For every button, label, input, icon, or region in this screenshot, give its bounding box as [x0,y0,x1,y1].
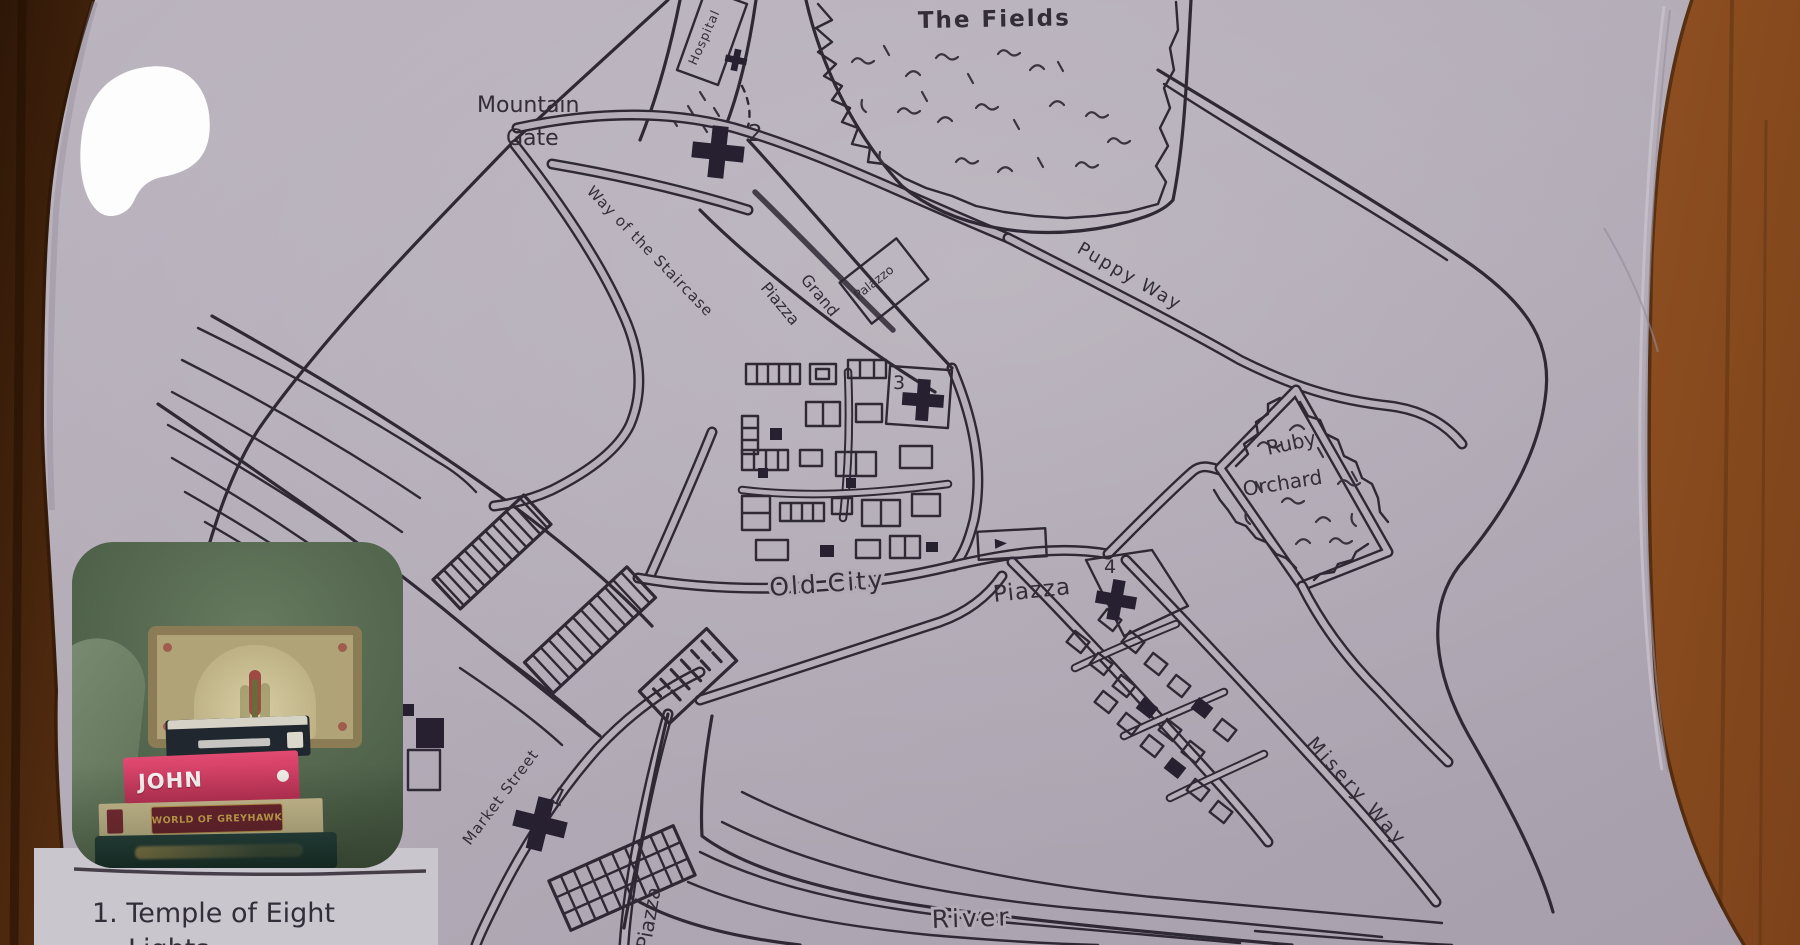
marker-number-2: 2 [748,121,763,147]
book-world-of-greyhawk: WORLD OF GREYHAWK [99,798,324,841]
book-pages-edge [167,716,307,730]
box-title-banner: WORLD OF GREYHAWK [151,803,284,834]
book-title: WORLD OF GREYHAWK [152,812,283,826]
book-teal-spine [95,832,338,868]
book-spine-text-bar [198,738,270,749]
book-title: JOHN CARTER [138,767,239,844]
tapestry-cushion [148,626,362,748]
book-dark-spine [165,715,310,760]
label-river: River [931,902,1012,934]
legend-line-2: Lights [128,934,209,945]
armchair-arm [72,634,150,868]
publisher-logo-icon [277,770,290,783]
book-spine-label [287,732,304,749]
marker-number-4: 4 [1104,556,1116,578]
legend-line-1: 1. Temple of Eight [92,898,335,929]
book-john-carter: JOHN CARTER [123,750,300,808]
seat-cushion [110,834,198,868]
webcam-overlay: JOHN CARTER WORLD OF GREYHAWK [72,542,403,868]
cushion-arch-pattern [194,645,316,739]
video-frame: The Fields Mountain Gate Hospital Way of… [0,0,1800,945]
gilt-lettering-blur [135,843,303,859]
cushion-flower-pattern [252,679,258,719]
label-mountain-gate-1: Mountain [477,93,580,118]
marker-number-3: 3 [893,372,905,394]
label-mountain-gate-2: Gate [506,126,559,151]
label-the-fields: The Fields [918,5,1071,34]
box-end-panel [107,809,124,833]
